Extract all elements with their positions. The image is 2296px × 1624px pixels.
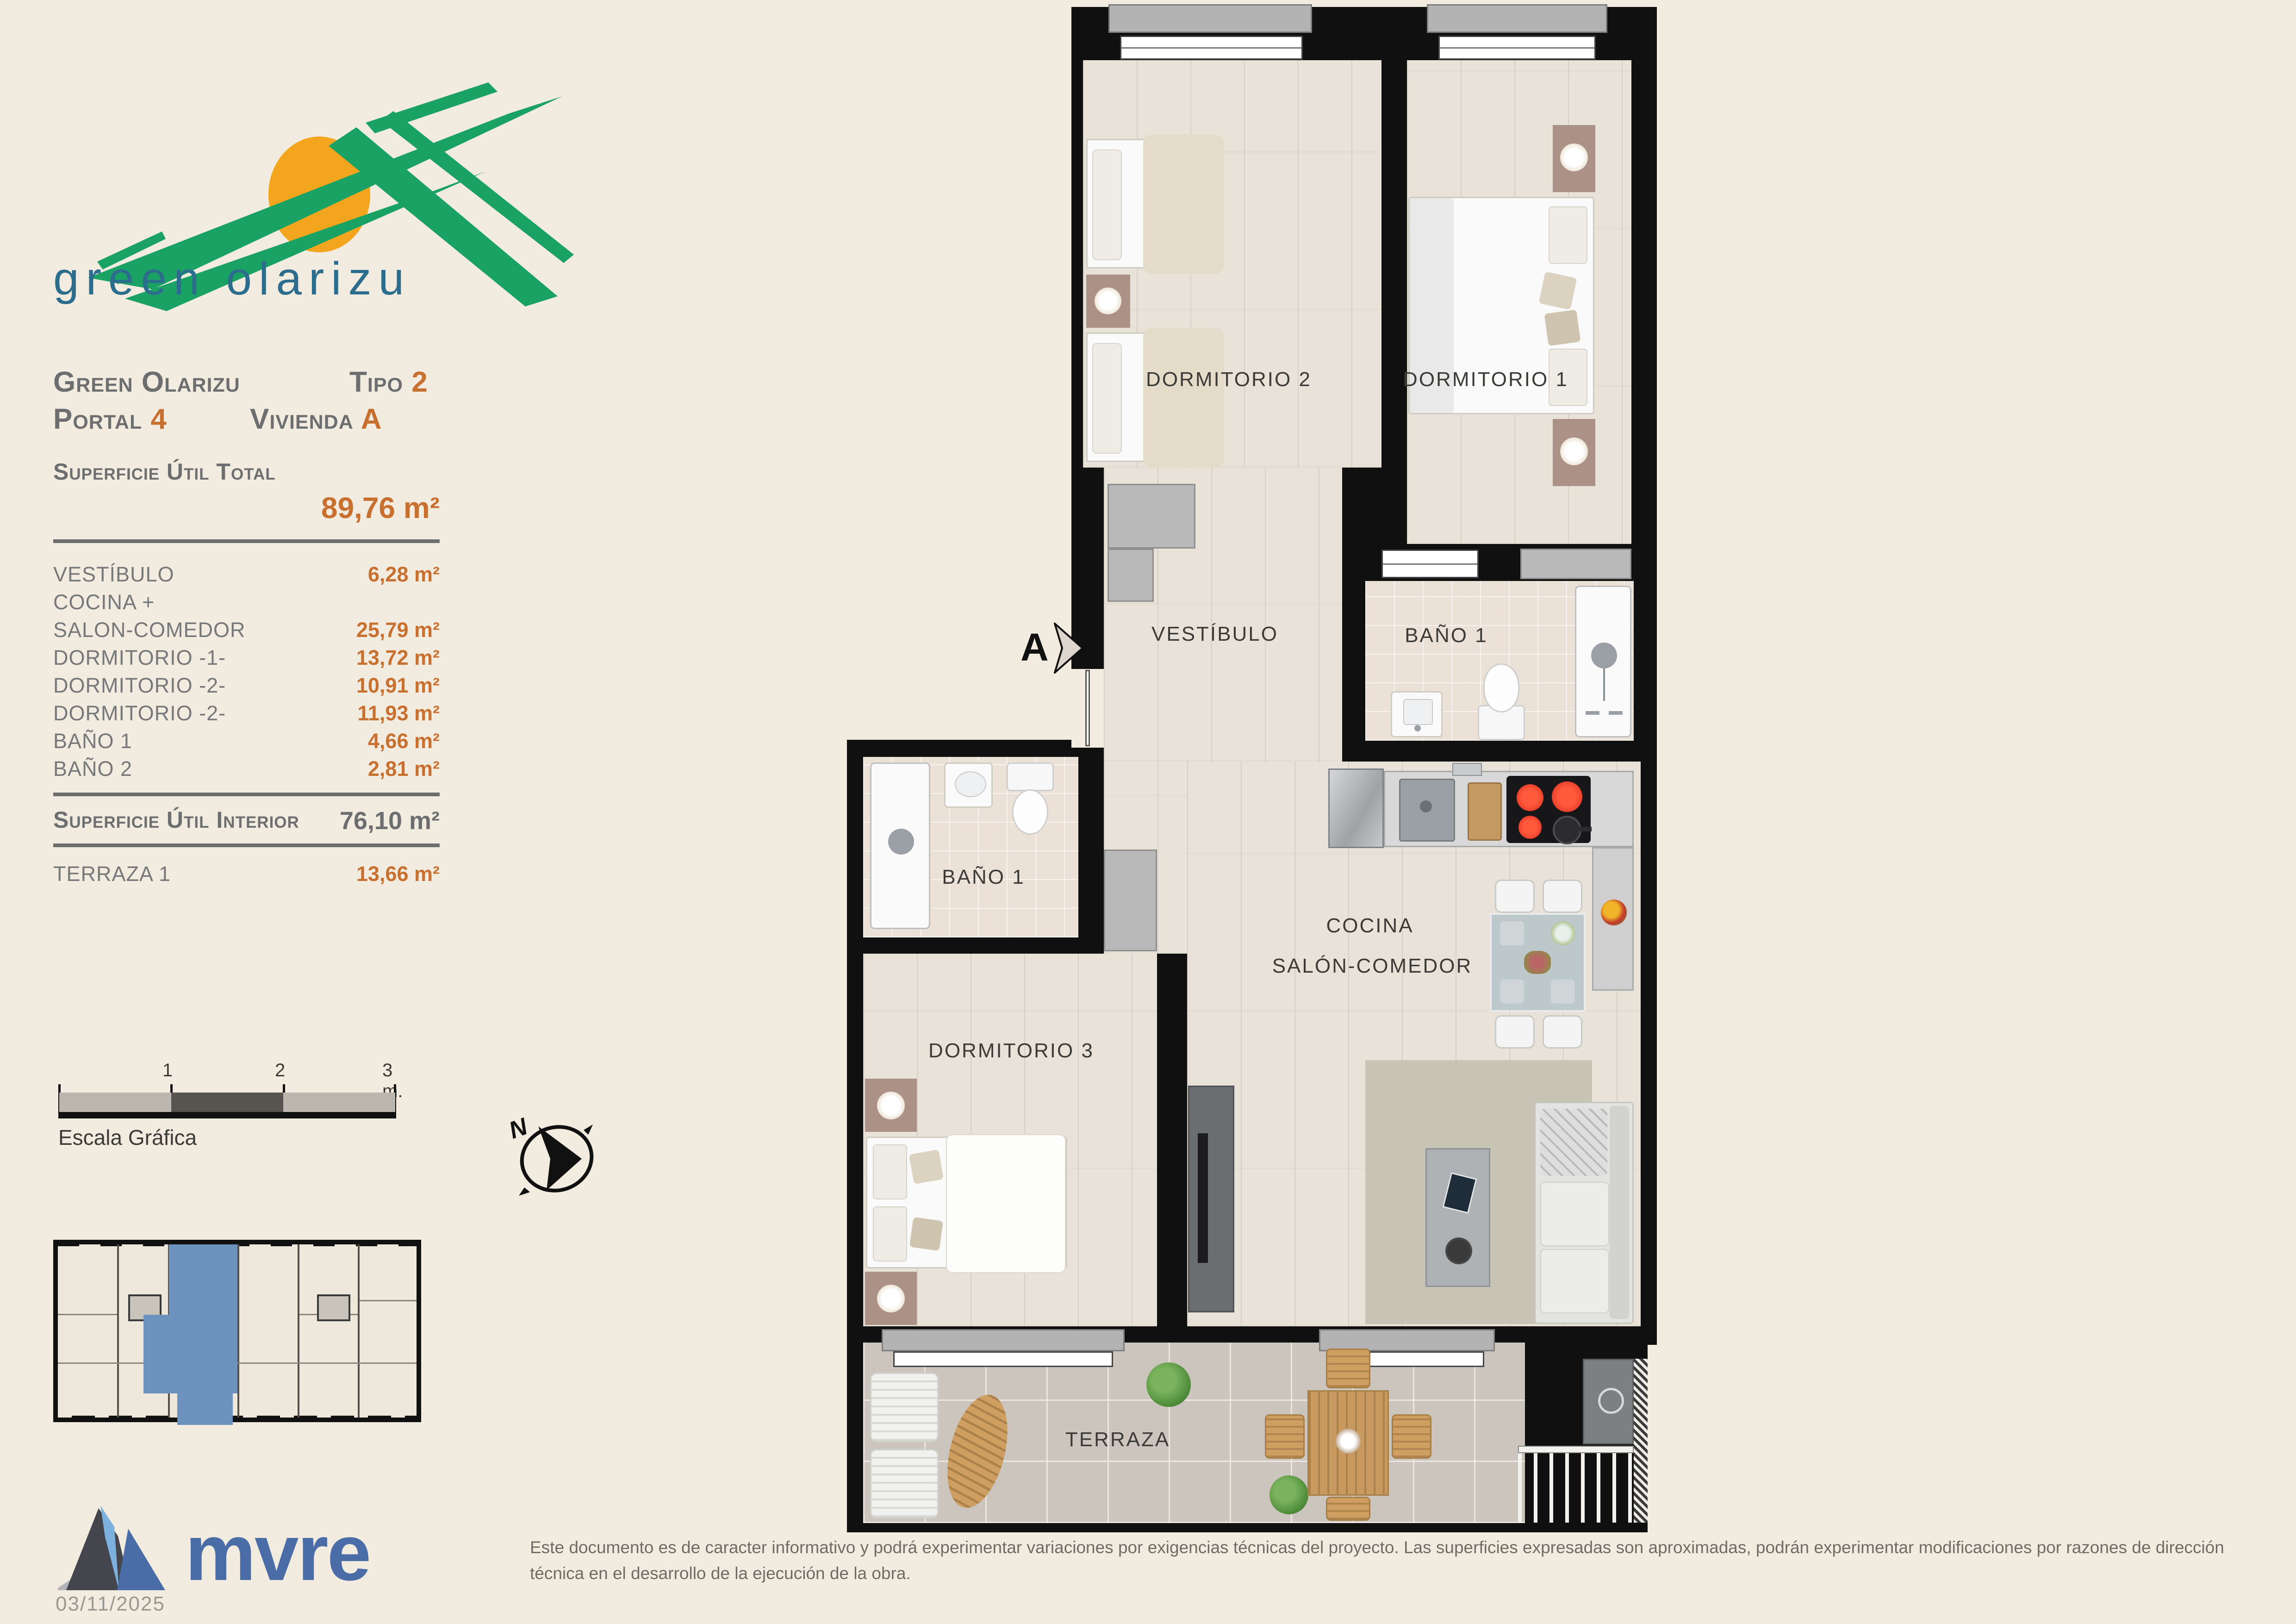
floor-plan-sheet: green olarizu Green Olarizu Tipo 2 Porta… xyxy=(0,0,2296,1624)
utility-unit xyxy=(1583,1359,1634,1444)
sink xyxy=(944,762,993,808)
sofa xyxy=(1534,1102,1634,1324)
dining-chair xyxy=(1543,880,1582,913)
terrace-chair xyxy=(1326,1349,1370,1388)
railing-top xyxy=(1518,1446,1634,1453)
closet xyxy=(1108,484,1195,549)
tipo-label: Tipo 2 xyxy=(349,366,428,399)
room-label-dormitorio1: DORMITORIO 1 xyxy=(1403,368,1568,391)
fruit-bowl xyxy=(1601,899,1627,925)
total-area-value: 89,76 m² xyxy=(53,491,440,525)
window xyxy=(1120,36,1303,60)
mvre-wordmark: mvre xyxy=(185,1507,370,1599)
room-label-salon: SALÓN-COMEDOR xyxy=(1272,955,1473,978)
plant-pot xyxy=(1269,1475,1308,1514)
table-row: BAÑO 1 4,66 m² xyxy=(53,729,440,757)
vivienda-label: Vivienda A xyxy=(250,403,382,436)
sink xyxy=(1391,691,1443,737)
kitchen-sink xyxy=(1399,779,1455,842)
date: 03/11/2025 xyxy=(56,1593,165,1616)
dining-chair xyxy=(1543,1015,1582,1049)
terraza-value: 13,66 m² xyxy=(53,862,440,886)
logo-wordmark: green olarizu xyxy=(53,252,411,306)
divider xyxy=(53,843,440,847)
lounge-chair xyxy=(870,1373,939,1442)
coffee-table xyxy=(1425,1148,1490,1287)
divider xyxy=(53,539,440,543)
double-bed xyxy=(866,1137,1067,1268)
terrace-chair xyxy=(1265,1414,1305,1459)
section-a-label: A xyxy=(1020,625,1049,670)
dining-chair xyxy=(1495,1015,1535,1049)
lounge-chair xyxy=(870,1449,939,1518)
terrace-chair xyxy=(1326,1497,1370,1521)
table-row: DORMITORIO -2- 10,91 m² xyxy=(53,674,440,701)
entry-door-leaf xyxy=(1085,670,1090,746)
sliding-door-sill xyxy=(1319,1329,1495,1351)
kitchen-counter xyxy=(1384,771,1634,847)
mvre-mountains-icon xyxy=(58,1500,178,1599)
tv-unit xyxy=(1188,1086,1234,1312)
portal-value: 4 xyxy=(150,403,167,435)
nightstand xyxy=(865,1272,917,1325)
nightstand xyxy=(1553,419,1595,486)
table-row: VESTÍBULO 6,28 m² xyxy=(53,562,440,590)
disclaimer: Este documento es de caracter informativ… xyxy=(530,1535,2261,1586)
window-awning xyxy=(1108,4,1312,33)
nightstand xyxy=(1086,275,1130,328)
closet xyxy=(1108,549,1154,602)
window xyxy=(893,1351,1113,1367)
room-label-dormitorio2: DORMITORIO 2 xyxy=(1146,368,1312,391)
decor-bowl xyxy=(1445,1237,1472,1264)
north-compass-icon: N xyxy=(502,1104,609,1211)
highlighted-unit xyxy=(169,1244,237,1393)
scale-bar-title: Escala Gráfica xyxy=(58,1125,197,1150)
tipo-value: 2 xyxy=(411,366,428,398)
tablet xyxy=(1442,1172,1477,1214)
entrance-arrow-icon xyxy=(1054,623,1086,674)
window-sill xyxy=(882,1329,1125,1351)
dining-chair xyxy=(1495,880,1535,913)
faucet xyxy=(1452,763,1482,776)
room-label-dormitorio3: DORMITORIO 3 xyxy=(928,1039,1094,1062)
wardrobe xyxy=(1520,549,1631,579)
table-row: COCINA + xyxy=(53,590,440,618)
table-row: DORMITORIO -1- 13,72 m² xyxy=(53,646,440,674)
room-label-vestibulo: VESTÍBULO xyxy=(1151,623,1278,646)
shower xyxy=(870,762,930,929)
terrace-chair xyxy=(1392,1414,1431,1459)
room-label-cocina: COCINA xyxy=(1326,914,1413,937)
cutting-board xyxy=(1468,782,1502,841)
kitchen-counter-side xyxy=(1592,847,1634,991)
plaid-blanket xyxy=(1540,1109,1607,1176)
single-bed xyxy=(1086,332,1223,462)
floor-plan: DORMITORIO 2 DORMITORIO 1 VESTÍBULO A xyxy=(845,7,1650,1535)
scale-bar: 1 2 3 m. Escala Gráfica xyxy=(58,1060,410,1148)
portal-label: Portal 4 xyxy=(53,403,167,436)
cooktop xyxy=(1506,776,1591,843)
table-row: DORMITORIO -2- 11,93 m² xyxy=(53,701,440,729)
room-label-bano1-left: BAÑO 1 xyxy=(942,866,1025,889)
window xyxy=(1381,550,1479,578)
shower xyxy=(1575,586,1631,737)
divider xyxy=(53,793,440,796)
vivienda-value: A xyxy=(361,403,382,435)
table-row: BAÑO 2 2,81 m² xyxy=(53,757,440,785)
room-label-bano1-top: BAÑO 1 xyxy=(1405,624,1487,647)
stair-hatch xyxy=(1634,1359,1648,1523)
fridge xyxy=(1328,768,1384,848)
area-table: VESTÍBULO 6,28 m² COCINA + SALON-COMEDOR… xyxy=(53,562,440,785)
terrace-table xyxy=(1307,1390,1389,1496)
room-label-terraza: TERRAZA xyxy=(1065,1428,1170,1451)
table-row: SALON-COMEDOR 25,79 m² xyxy=(53,618,440,646)
wardrobe xyxy=(1104,849,1157,951)
window-awning xyxy=(1427,4,1607,33)
nightstand xyxy=(865,1079,917,1132)
interior-area-value: 76,10 m² xyxy=(53,806,440,835)
window xyxy=(1438,36,1596,60)
project-title: Green Olarizu xyxy=(53,366,240,399)
dining-table xyxy=(1490,913,1585,1012)
nightstand xyxy=(1553,125,1595,192)
tv-screen xyxy=(1198,1133,1208,1263)
single-bed xyxy=(1086,139,1223,269)
railing-balusters xyxy=(1518,1453,1634,1523)
total-area-label: Superficie Útil Total xyxy=(53,458,276,485)
plant-pot xyxy=(1146,1362,1191,1407)
svg-text:N: N xyxy=(505,1113,531,1144)
building-key-plan xyxy=(53,1240,421,1422)
